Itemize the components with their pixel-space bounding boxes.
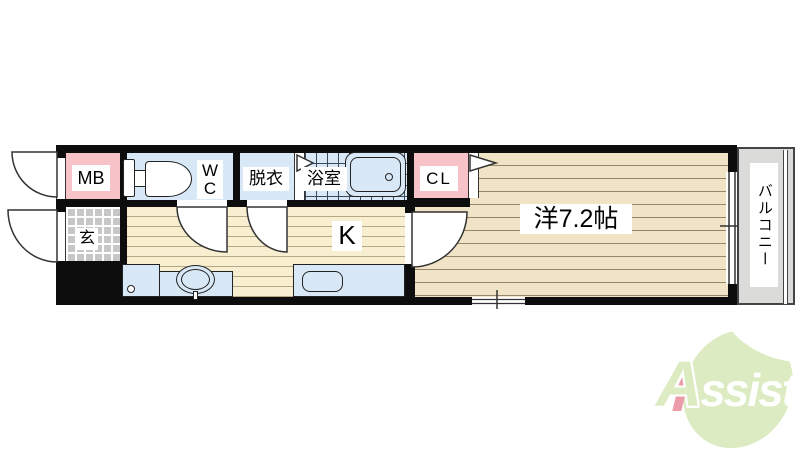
balcony-rail-line bbox=[783, 150, 788, 304]
label-dressing: 脱衣 bbox=[243, 167, 289, 191]
logo-letter-a: A bbox=[656, 348, 700, 420]
wc-door-arc-icon bbox=[177, 207, 227, 252]
label-wc: W C bbox=[197, 160, 223, 199]
logo-letters-rest: ssist bbox=[700, 364, 795, 416]
label-kitchen: K bbox=[332, 221, 362, 251]
logo-text: Assist bbox=[656, 347, 795, 421]
floorplan-canvas: MB W C 脱衣 浴室 CL 玄 K 洋7.2帖 バルコニー Assist bbox=[0, 0, 800, 450]
label-closet: CL bbox=[420, 166, 458, 191]
entrance-door-arc-icon bbox=[8, 210, 57, 262]
living-door-arc-icon bbox=[412, 212, 467, 267]
assist-logo: Assist bbox=[650, 323, 800, 450]
label-balcony: バルコニー bbox=[750, 163, 778, 287]
dressing-door-arc-icon bbox=[247, 207, 287, 252]
label-western-room: 洋7.2帖 bbox=[520, 204, 632, 234]
closet-door-flag-icon bbox=[470, 155, 496, 171]
mb-door-arc-icon bbox=[12, 152, 57, 197]
label-bath: 浴室 bbox=[301, 167, 347, 191]
label-mb: MB bbox=[72, 165, 110, 191]
label-entrance: 玄 bbox=[76, 228, 98, 250]
